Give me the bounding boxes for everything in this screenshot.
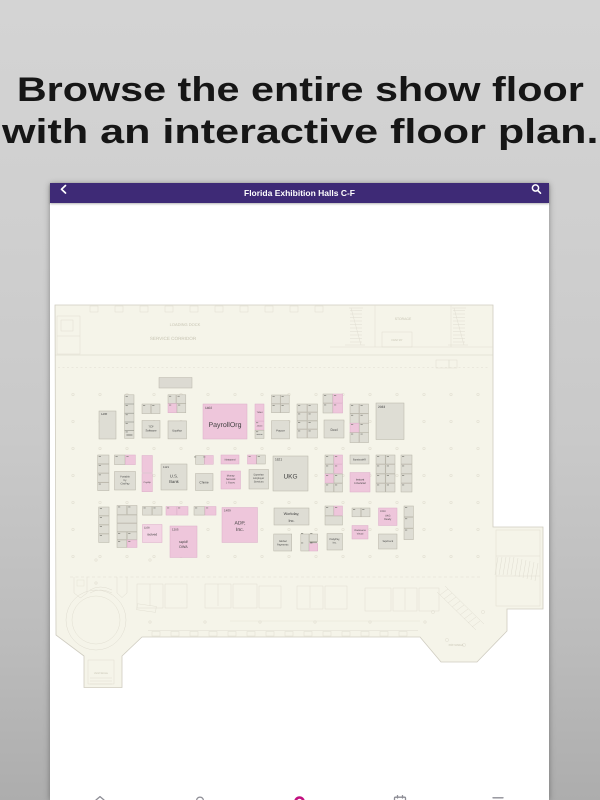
svg-text:Chime: Chime — [199, 481, 208, 485]
svg-text:Bank: Bank — [169, 479, 179, 484]
svg-text:1409: 1409 — [224, 508, 231, 512]
svg-text:1205: 1205 — [172, 528, 179, 532]
svg-text:1621: 1621 — [275, 458, 282, 462]
svg-text:Payments: Payments — [277, 544, 289, 547]
svg-text:1400: 1400 — [101, 412, 108, 416]
svg-text:1402: 1402 — [205, 406, 212, 410]
svg-text:STORAGE: STORAGE — [395, 317, 412, 321]
svg-text:Paycor: Paycor — [276, 429, 285, 433]
svg-text:Virtual: Virtual — [357, 533, 364, 536]
svg-text:Deel: Deel — [331, 428, 338, 432]
svg-text:LOADING DOCK: LOADING DOCK — [170, 322, 201, 327]
svg-text:Payslip: Payslip — [144, 481, 152, 484]
svg-text:1121: 1121 — [163, 465, 169, 469]
svg-text:DWA: DWA — [179, 545, 188, 549]
svg-text:PANTRY: PANTRY — [391, 338, 402, 342]
svg-text:U.S.: U.S. — [170, 474, 178, 479]
svg-text:Tapcheck: Tapcheck — [382, 540, 394, 543]
svg-text:Netspend: Netspend — [225, 459, 236, 462]
svg-text:2413: 2413 — [380, 510, 386, 513]
svg-text:ROTUNDA: ROTUNDA — [449, 643, 464, 647]
svg-text:TriNet: TriNet — [257, 411, 263, 414]
svg-text:Inc.: Inc. — [333, 542, 337, 545]
svg-text:accrue: accrue — [256, 433, 263, 436]
svg-text:ADP,: ADP, — [234, 521, 245, 527]
svg-text:| Fiserv: | Fiserv — [226, 482, 235, 485]
svg-text:BambooHR: BambooHR — [353, 459, 366, 462]
svg-text:Equifax: Equifax — [173, 429, 183, 433]
svg-text:Inc.: Inc. — [236, 527, 244, 533]
svg-text:isolved: isolved — [147, 533, 157, 537]
svg-text:attract: attract — [257, 425, 263, 428]
svg-text:PayrollOrg: PayrollOrg — [208, 421, 241, 429]
svg-text:rapid!: rapid! — [179, 540, 188, 544]
svg-text:Inc.: Inc. — [288, 519, 294, 523]
svg-text:Software: Software — [145, 429, 156, 433]
svg-text:Financial: Financial — [354, 481, 366, 485]
svg-text:VESTIBULE: VESTIBULE — [94, 672, 109, 675]
svg-text:Ready: Ready — [384, 518, 392, 521]
svg-text:UKG: UKG — [283, 474, 297, 481]
svg-text:1108: 1108 — [144, 527, 150, 530]
svg-text:CintPay: CintPay — [120, 483, 130, 486]
svg-text:Services: Services — [254, 481, 265, 484]
svg-text:SERVICE CORRIDOR: SERVICE CORRIDOR — [150, 336, 197, 341]
svg-text:Workday,: Workday, — [284, 512, 300, 516]
svg-text:2033: 2033 — [378, 405, 385, 409]
svg-text:OneSource: OneSource — [354, 529, 366, 532]
